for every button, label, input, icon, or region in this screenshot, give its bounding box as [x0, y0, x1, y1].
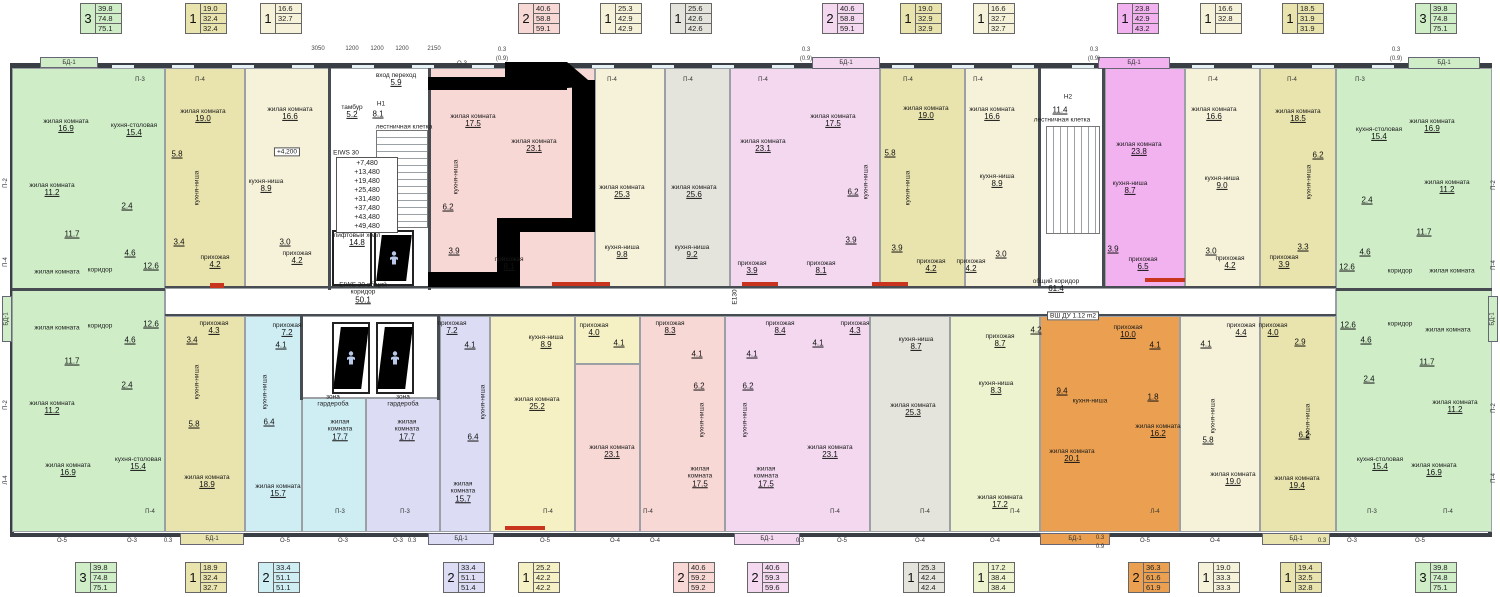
room-label: 2.9 — [1294, 339, 1305, 348]
legend-area-value: 39.8 — [91, 563, 116, 573]
legend-area-value: 42.9 — [616, 14, 641, 24]
legend-card[interactable]: 119.432.532.8 — [1280, 562, 1322, 593]
facade-label: 0.3 — [1318, 538, 1326, 544]
room-area: 9.8 — [616, 251, 627, 260]
apartment-unit-b2-tan[interactable] — [165, 316, 245, 532]
dimension-label: 3050 — [311, 46, 324, 52]
legend-unit-type: 1 — [1281, 563, 1296, 592]
room-label: 5.8 — [171, 151, 182, 160]
room-label: кухня-ниша — [1209, 399, 1216, 434]
legend-area-value: 16.6 — [1216, 4, 1241, 14]
legend-card[interactable]: 119.033.333.3 — [1198, 562, 1240, 593]
legend-card[interactable]: 118.932.432.7 — [185, 562, 227, 593]
legend-area-value: 58.8 — [838, 14, 863, 24]
facade-label: О-4 — [1210, 538, 1220, 544]
room-area: 23.1 — [755, 145, 771, 154]
legend-card[interactable]: 123.842.943.2 — [1117, 3, 1159, 34]
legend-area-value: 38.4 — [989, 573, 1014, 583]
room-area: 19.0 — [1225, 478, 1241, 487]
facade-label: П-4 — [1208, 77, 1218, 83]
legend-area-value: 33.3 — [1214, 583, 1239, 592]
legend-area-value: 74.8 — [96, 14, 121, 24]
room-label: жилая комната — [1425, 326, 1470, 333]
room-label: прихожая4.2 — [917, 258, 946, 274]
room-area: 6.2 — [1298, 432, 1309, 441]
legend-card[interactable]: 339.874.875.1 — [80, 3, 122, 34]
room-label: 2.4 — [121, 203, 132, 212]
facade-label: П-4 — [1443, 509, 1453, 515]
room-label: коридор — [88, 266, 113, 273]
room-area: 2.4 — [121, 203, 132, 212]
legend-area-value: 32.8 — [1296, 583, 1321, 592]
room-area: 4.6 — [1359, 249, 1370, 258]
apartment-unit-b11-cream[interactable] — [1180, 316, 1260, 532]
room-label: кухня-ниша — [261, 375, 268, 410]
room-area: 23.1 — [822, 451, 838, 460]
room-label: 3.0 — [279, 239, 290, 248]
room-name: EIWS 30 общий коридор — [334, 281, 392, 296]
room-area: 15.4 — [126, 129, 142, 138]
legend-card[interactable]: 116.632.8 — [1200, 3, 1242, 34]
room-label: прихожая8.1 — [807, 260, 836, 276]
legend-area-value: 40.6 — [838, 4, 863, 14]
room-area: 3.0 — [995, 251, 1006, 260]
room-label: жилая комната — [34, 324, 79, 331]
room-label: 5.8 — [1202, 437, 1213, 446]
legend-card[interactable]: 125.342.942.9 — [600, 3, 642, 34]
room-area: 8.7 — [910, 343, 921, 352]
room-label: H2 — [1064, 93, 1072, 100]
room-area: 6.2 — [847, 189, 858, 198]
legend-card[interactable]: 339.874.875.1 — [1415, 3, 1457, 34]
room-label: 4.6 — [124, 250, 135, 259]
room-name: коридор — [1388, 267, 1413, 274]
room-label: коридор — [1388, 320, 1413, 327]
legend-area-value: 19.4 — [1296, 563, 1321, 573]
legend-area-value: 59.6 — [763, 583, 788, 592]
room-area: 4.4 — [1235, 329, 1246, 338]
facade-label: П-3 — [400, 509, 410, 515]
interior-wall — [328, 68, 331, 290]
legend-area-value: 23.8 — [1133, 4, 1158, 14]
room-label: прихожая4.3 — [841, 320, 870, 336]
legend-area-value: 58.8 — [534, 14, 559, 24]
legend-unit-type: 3 — [1416, 4, 1431, 33]
room-area: 17.5 — [825, 120, 841, 129]
room-label: прихожая3.9 — [738, 260, 767, 276]
legend-area-value: 43.2 — [1133, 24, 1158, 33]
legend-card[interactable]: 125.342.442.4 — [903, 562, 945, 593]
room-area: 17.5 — [465, 120, 481, 129]
room-name: коридор — [1388, 320, 1413, 327]
legend-areas: 18.531.931.9 — [1298, 4, 1323, 33]
facade-label: Л-4 — [1150, 509, 1159, 515]
legend-unit-type: 1 — [261, 4, 276, 33]
room-label: кухня-ниша — [193, 365, 200, 400]
room-area: 25.3 — [614, 191, 630, 200]
elevation-level: +13,480 — [339, 168, 395, 177]
legend-unit-type: 3 — [76, 563, 91, 592]
room-area: 1.8 — [1147, 394, 1158, 403]
legend-area-value: 59.2 — [689, 573, 714, 583]
highlight-mask — [497, 218, 595, 232]
legend-area-value: 74.8 — [91, 573, 116, 583]
apartment-unit-b12-tan[interactable] — [1260, 316, 1336, 532]
room-name: кухня-ниша — [261, 375, 268, 410]
room-area: 3.4 — [186, 337, 197, 346]
room-area: 19.4 — [1289, 482, 1305, 491]
facade-label: П-3 — [135, 77, 145, 83]
apartment-unit-t7-violet[interactable] — [730, 68, 880, 288]
room-label: общий коридор61.4 — [1029, 278, 1083, 294]
legend-card[interactable]: 233.451.151.1 — [258, 562, 300, 593]
room-area: 6.5 — [1137, 263, 1148, 272]
room-label: EIWS 30 — [333, 149, 359, 156]
legend-area-value: 16.6 — [989, 4, 1014, 14]
room-area: 8.3 — [664, 327, 675, 336]
room-area: 4.0 — [1267, 329, 1278, 338]
legend-unit-type: 1 — [671, 4, 686, 33]
room-label: жилая комната16.6 — [267, 106, 312, 122]
room-name: кухня-ниша — [1209, 399, 1216, 434]
legend-unit-type: 1 — [901, 4, 916, 33]
legend-card[interactable]: 240.659.359.6 — [747, 562, 789, 593]
balcony: БД-1 — [1488, 296, 1498, 342]
balcony-label: БД-1 — [1127, 60, 1140, 66]
legend-card[interactable]: 240.659.259.2 — [673, 562, 715, 593]
room-area: 8.9 — [540, 341, 551, 350]
legend-areas: 19.033.333.3 — [1214, 563, 1239, 592]
room-label: тамбур5.2 — [341, 104, 362, 120]
room-area: 17.5 — [758, 480, 774, 489]
room-area: 3.3 — [1297, 244, 1308, 253]
room-area: 16.6 — [984, 113, 1000, 122]
room-label: лифтовый холл14.8 — [333, 232, 381, 248]
apartment-unit-t1-green[interactable] — [12, 68, 165, 290]
balcony-label: БД-1 — [760, 536, 773, 542]
legend-card[interactable]: 125.642.642.6 — [670, 3, 712, 34]
room-label: кухня-ниша — [904, 171, 911, 206]
legend-areas: 39.874.875.1 — [1431, 4, 1456, 33]
room-area: 8.1 — [503, 263, 514, 272]
room-label: кухня-ниша8.9 — [529, 334, 564, 350]
elevator-shaft — [332, 322, 370, 394]
room-area: 11.4 — [1053, 107, 1068, 116]
room-label: кухня-столовая15.4 — [1357, 456, 1403, 472]
legend-card[interactable]: 339.874.875.1 — [1415, 562, 1457, 593]
balcony-label: БД-1 — [1289, 536, 1302, 542]
room-area: 16.2 — [1150, 430, 1166, 439]
room-area: 12.6 — [1340, 322, 1356, 331]
legend-area-value: 42.4 — [919, 583, 944, 592]
legend-area-value: 32.4 — [201, 14, 226, 24]
legend-card[interactable]: 119.032.932.9 — [900, 3, 942, 34]
room-label: жилая комната16.9 — [45, 462, 90, 478]
room-area: 12.6 — [143, 263, 159, 272]
room-area: 4.1 — [1149, 342, 1160, 351]
legend-unit-type: 2 — [259, 563, 274, 592]
room-label: 2.4 — [1363, 376, 1374, 385]
room-label: жилая комната19.4 — [1274, 475, 1319, 491]
legend-area-value: 32.7 — [276, 14, 301, 24]
interior-wall — [1102, 68, 1105, 288]
room-area: 3.0 — [279, 239, 290, 248]
room-label: кухня-ниша — [741, 403, 748, 438]
legend-area-value: 32.4 — [201, 24, 226, 33]
room-area: 12.6 — [143, 321, 159, 330]
room-label: жилая комната16.2 — [1135, 423, 1181, 439]
room-area: 4.6 — [124, 250, 135, 259]
room-label: 6.2 — [742, 383, 753, 392]
room-label: жилая комната16.9 — [43, 118, 88, 134]
legend-areas: 40.658.859.1 — [838, 4, 863, 33]
radiator-mark — [505, 526, 545, 530]
legend-area-value: 39.8 — [96, 4, 121, 14]
legend-unit-type: 2 — [674, 563, 689, 592]
room-label: прихожая4.2 — [1216, 255, 1245, 271]
room-area: 16.9 — [1424, 125, 1440, 134]
room-label: 3.4 — [186, 337, 197, 346]
room-area: 3.9 — [1278, 261, 1289, 270]
room-label: 5.8 — [884, 150, 895, 159]
facade-label: П-4 — [1287, 77, 1297, 83]
room-area: 4.2 — [209, 261, 220, 270]
radiator-mark — [552, 282, 610, 286]
room-name: жилая комната — [678, 465, 722, 480]
room-name: EIWS 30 — [333, 149, 359, 156]
legend-area-value: 51.1 — [274, 573, 299, 583]
room-name: +4,200 — [277, 148, 297, 155]
room-name: кухня-ниша — [904, 171, 911, 206]
room-label: 3.9 — [1107, 246, 1118, 255]
facade-label: О-3 — [457, 61, 467, 67]
room-label: H1 — [377, 100, 385, 107]
facade-label: 0.9 — [1096, 544, 1104, 550]
legend-area-value: 59.1 — [534, 24, 559, 33]
room-label: прихожая4.0 — [1259, 322, 1288, 338]
legend-unit-type: 1 — [1118, 4, 1133, 33]
legend-area-value: 31.9 — [1298, 24, 1323, 33]
legend-areas: 40.659.259.2 — [689, 563, 714, 592]
legend-card[interactable]: 117.238.438.4 — [973, 562, 1015, 593]
legend-area-value: 61.6 — [1144, 573, 1169, 583]
room-area: 11.2 — [45, 407, 60, 416]
facade-label: О-4 — [990, 538, 1000, 544]
room-label: кухня-столовая15.4 — [111, 122, 157, 138]
facade-label: П-2 — [1491, 180, 1497, 190]
room-label: жилая комната16.9 — [1409, 118, 1454, 134]
room-area: 15.7 — [455, 495, 471, 504]
room-label: кухня-ниша9.2 — [675, 244, 710, 260]
room-label: 1.8 — [1147, 394, 1158, 403]
room-label: 11.7 — [1417, 229, 1432, 238]
legend-card[interactable]: 116.632.732.7 — [973, 3, 1015, 34]
dimension-label: 0.3 — [498, 47, 506, 53]
room-area: 16.6 — [1206, 113, 1222, 122]
room-area: 4.1 — [613, 340, 624, 349]
room-area: 8.9 — [991, 180, 1002, 189]
room-label: EIWS 30 общий коридор50.1 — [334, 281, 392, 304]
legend-card[interactable]: 240.658.859.1 — [822, 3, 864, 34]
legend-area-value: 32.4 — [201, 573, 226, 583]
room-label: E130 — [731, 289, 738, 304]
legend-area-value: 32.7 — [201, 583, 226, 592]
room-label: коридор — [1388, 267, 1413, 274]
room-area: 16.9 — [58, 125, 74, 134]
interior-wall — [1336, 288, 1492, 291]
room-label: жилая комната17.5 — [678, 465, 722, 488]
room-label: 11.7 — [65, 231, 80, 240]
balcony: БД-1 — [1408, 57, 1480, 69]
facade-label: П-4 — [195, 77, 205, 83]
legend-area-value: 59.3 — [763, 573, 788, 583]
legend-area-value — [276, 24, 301, 33]
room-area: 17.7 — [332, 433, 348, 442]
room-label: 6.2 — [693, 383, 704, 392]
room-name: кухня-ниша — [698, 403, 705, 438]
legend-card[interactable]: 233.451.151.4 — [443, 562, 485, 593]
apartment-unit-b6-pink[interactable] — [640, 316, 725, 532]
room-label: кухня-ниша8.9 — [249, 178, 284, 194]
room-area: 7.2 — [281, 329, 292, 338]
room-name: жилая комната — [34, 324, 79, 331]
room-area: 8.1 — [372, 111, 383, 120]
legend-area-value: 33.4 — [459, 563, 484, 573]
staircase-h2 — [1046, 126, 1100, 234]
facade-label: О-3 — [393, 538, 403, 544]
room-area: 3.9 — [891, 245, 902, 254]
legend-area-value: 40.6 — [689, 563, 714, 573]
room-label: кухня-ниша — [1305, 165, 1312, 200]
room-label: 12.6 — [143, 321, 159, 330]
floorplan-canvas: 339.874.875.1119.032.432.4116.632.7240.6… — [0, 0, 1500, 597]
legend-areas: 16.632.732.7 — [989, 4, 1014, 33]
room-area: 17.2 — [992, 501, 1008, 510]
facade-label: 0.3 — [1096, 535, 1104, 541]
room-label: жилая комната23.1 — [807, 444, 852, 460]
facade-label: О-5 — [57, 538, 67, 544]
legend-area-value: 31.9 — [1298, 14, 1323, 24]
facade-label: О-5 — [1415, 538, 1425, 544]
room-area: 4.0 — [588, 329, 599, 338]
legend-areas: 17.238.438.4 — [989, 563, 1014, 592]
room-label: лестничная клетка — [376, 123, 432, 130]
room-area: 6.2 — [442, 204, 453, 213]
room-label: жилая комната17.2 — [977, 494, 1022, 510]
legend-areas: 16.632.7 — [276, 4, 301, 33]
room-label: 12.6 — [143, 263, 159, 272]
room-label: 2.4 — [121, 382, 132, 391]
room-label: жилая комната15.7 — [255, 483, 300, 499]
facade-label: П-2 — [3, 400, 9, 410]
room-area: 15.4 — [130, 463, 146, 472]
legend-area-value: 75.1 — [1431, 24, 1456, 33]
room-area: 61.4 — [1048, 285, 1064, 294]
room-area: 5.2 — [346, 111, 357, 120]
legend-unit-type: 2 — [444, 563, 459, 592]
legend-unit-type: 1 — [1283, 4, 1298, 33]
legend-card[interactable]: 339.874.875.1 — [75, 562, 117, 593]
legend-card[interactable]: 125.242.242.2 — [518, 562, 560, 593]
room-area: 3.4 — [173, 239, 184, 248]
legend-areas: 25.642.642.6 — [686, 4, 711, 33]
legend-area-value: 51.1 — [459, 573, 484, 583]
legend-card[interactable]: 119.032.432.4 — [185, 3, 227, 34]
room-label: 4.1 — [613, 340, 624, 349]
room-label: кухня-ниша — [193, 171, 200, 206]
interior-wall — [165, 314, 1336, 316]
room-label: кухня-столовая15.4 — [1356, 126, 1402, 142]
room-label: кухня-ниша8.7 — [1113, 180, 1148, 196]
facade-label: П-4 — [903, 77, 913, 83]
legend-area-value: 17.2 — [989, 563, 1014, 573]
room-name: кухня-ниша — [479, 385, 486, 420]
legend-area-value: 59.2 — [689, 583, 714, 592]
legend-unit-type: 3 — [81, 4, 96, 33]
room-area: 16.6 — [282, 113, 298, 122]
legend-area-value: 51.4 — [459, 583, 484, 592]
room-area: 17.5 — [692, 480, 708, 489]
room-area: 5.8 — [188, 421, 199, 430]
legend-unit-type: 2 — [823, 4, 838, 33]
legend-areas: 36.361.661.9 — [1144, 563, 1169, 592]
room-name: E130 — [731, 289, 738, 304]
balcony: БД-1 — [428, 533, 494, 545]
balcony-label: БД-1 — [1490, 312, 1496, 325]
facade-label: Л-4 — [3, 475, 9, 484]
legend-area-value: 75.1 — [1431, 583, 1456, 592]
room-name: жилая комната — [385, 418, 429, 433]
room-area: 11.2 — [1440, 186, 1455, 195]
room-label: 4.2 — [1030, 327, 1041, 336]
room-label: 6.2 — [442, 204, 453, 213]
room-label: жилая комната23.1 — [589, 444, 634, 460]
dimension-label: 2150 — [427, 46, 440, 52]
room-area: 23.8 — [1131, 148, 1147, 157]
room-label: жилая комната25.3 — [599, 184, 644, 200]
room-label: кухня-ниша — [862, 165, 869, 200]
legend-card[interactable]: 118.531.931.9 — [1282, 3, 1324, 34]
room-area: 4.2 — [1224, 262, 1235, 271]
dimension-label: (0.9) — [496, 56, 508, 62]
room-area: 25.2 — [529, 403, 545, 412]
room-label: прихожая4.3 — [200, 320, 229, 336]
legend-card[interactable]: 236.361.661.9 — [1128, 562, 1170, 593]
dimension-label: (0.9) — [1088, 56, 1100, 62]
room-area: 8.3 — [990, 387, 1001, 396]
apartment-unit-t8-tan[interactable] — [880, 68, 965, 288]
room-label: 4.1 — [275, 342, 286, 351]
legend-area-value: 42.4 — [919, 573, 944, 583]
room-area: 4.1 — [746, 351, 757, 360]
legend-area-value: 75.1 — [91, 583, 116, 592]
legend-unit-type: 2 — [748, 563, 763, 592]
legend-area-value: 32.8 — [1216, 14, 1241, 24]
room-label: 4.1 — [464, 342, 475, 351]
facade-label: О-4 — [610, 538, 620, 544]
legend-unit-type: 1 — [974, 4, 989, 33]
room-label: 3.9 — [891, 245, 902, 254]
legend-unit-type: 3 — [1416, 563, 1431, 592]
facade-label: П-4 — [543, 509, 553, 515]
room-label: жилая комната18.9 — [184, 474, 229, 490]
room-area: 25.6 — [686, 191, 702, 200]
legend-areas: 25.342.942.9 — [616, 4, 641, 33]
room-label: жилая комната25.2 — [514, 396, 559, 412]
room-label: 12.6 — [1339, 264, 1355, 273]
legend-card[interactable]: 240.658.859.1 — [518, 3, 560, 34]
legend-card[interactable]: 116.632.7 — [260, 3, 302, 34]
